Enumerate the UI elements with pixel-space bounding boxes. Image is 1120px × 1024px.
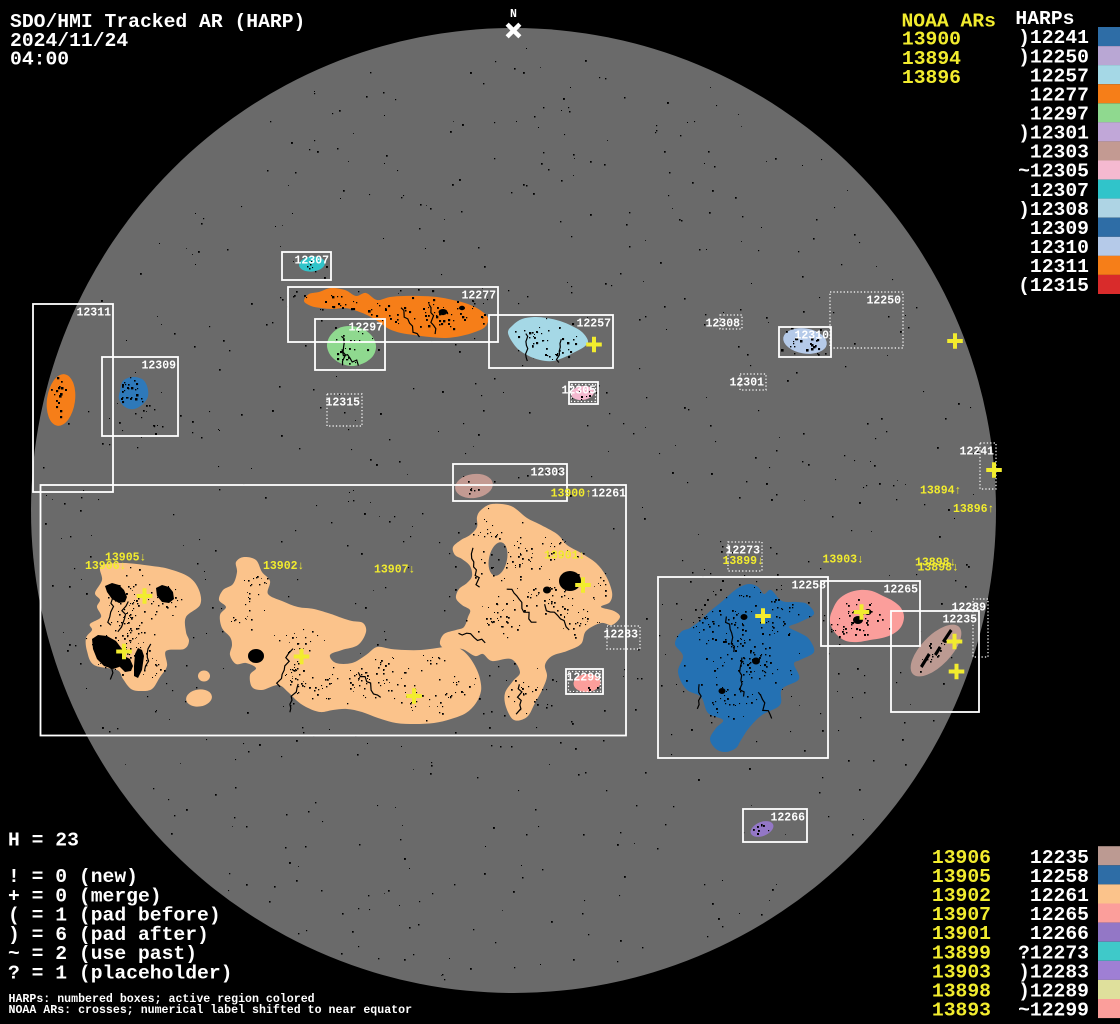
- svg-text:12308: 12308: [705, 318, 740, 331]
- svg-text:13899↓: 13899↓: [723, 555, 764, 568]
- svg-text:12241: 12241: [959, 446, 994, 459]
- svg-text:12311: 12311: [76, 307, 111, 320]
- svg-text:13896↑: 13896↑: [953, 503, 994, 516]
- svg-text:13906↓: 13906↓: [85, 560, 126, 573]
- svg-text:12305: 12305: [561, 385, 596, 398]
- svg-text:12261: 12261: [591, 488, 626, 501]
- svg-text:12301: 12301: [729, 377, 764, 390]
- svg-text:12309: 12309: [141, 360, 176, 373]
- svg-text:NOAA ARs: crosses; numerical l: NOAA ARs: crosses; numerical label shift…: [9, 1004, 413, 1017]
- svg-text:13907↓: 13907↓: [374, 564, 415, 577]
- svg-text:13898↓: 13898↓: [918, 562, 959, 575]
- svg-text:04:00: 04:00: [10, 49, 69, 71]
- svg-text:12315: 12315: [325, 397, 360, 410]
- svg-text:12235: 12235: [942, 614, 977, 627]
- svg-text:(12315: (12315: [1018, 275, 1089, 297]
- svg-text:12307: 12307: [294, 255, 329, 268]
- svg-text:12257: 12257: [576, 318, 611, 331]
- svg-text:12299: 12299: [566, 672, 601, 685]
- svg-text:13893: 13893: [932, 1000, 991, 1022]
- svg-text:13900↑: 13900↑: [551, 488, 592, 501]
- svg-text:13903↓: 13903↓: [823, 554, 864, 567]
- svg-text:12277: 12277: [461, 290, 496, 303]
- svg-text:13896: 13896: [902, 67, 961, 89]
- svg-text:13902↓: 13902↓: [263, 560, 304, 573]
- svg-text:12310: 12310: [794, 330, 829, 343]
- svg-text:H = 23: H = 23: [8, 830, 79, 852]
- svg-text:12303: 12303: [530, 467, 565, 480]
- svg-text:13901↓: 13901↓: [544, 550, 585, 563]
- svg-text:? = 1 (placeholder): ? = 1 (placeholder): [8, 963, 232, 985]
- svg-text:12289: 12289: [951, 602, 986, 615]
- svg-text:12250: 12250: [866, 295, 901, 308]
- svg-text:~12299: ~12299: [1018, 1000, 1089, 1022]
- svg-text:12265: 12265: [883, 584, 918, 597]
- svg-text:12266: 12266: [770, 812, 805, 825]
- svg-text:12297: 12297: [348, 322, 383, 335]
- svg-text:12283: 12283: [603, 629, 638, 642]
- svg-text:13894↑: 13894↑: [920, 485, 961, 498]
- svg-text:N: N: [510, 8, 517, 21]
